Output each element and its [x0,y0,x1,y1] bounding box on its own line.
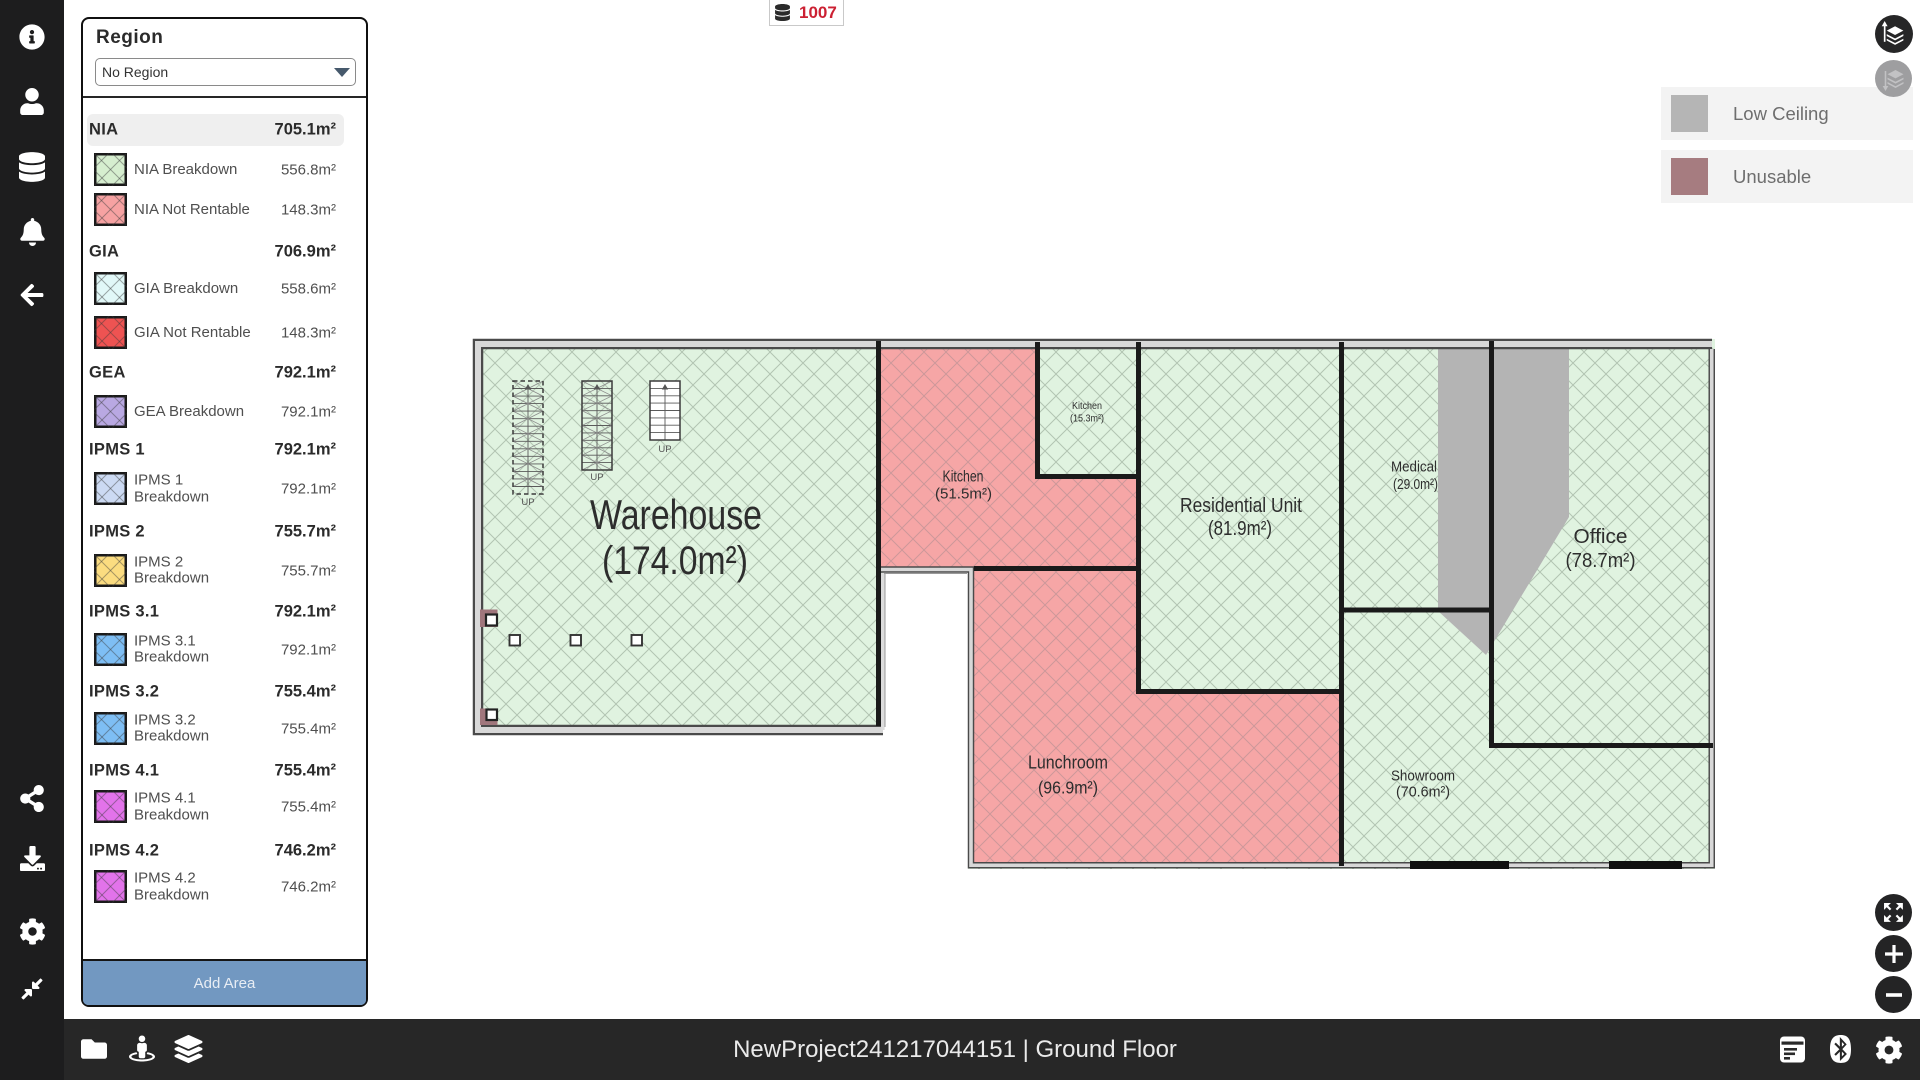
svg-text:(15.3m²): (15.3m²) [1070,413,1104,425]
svg-text:(174.0m²): (174.0m²) [602,539,748,583]
svg-text:(81.9m²): (81.9m²) [1208,518,1272,540]
svg-text:Kitchen: Kitchen [943,469,984,486]
svg-text:(29.0m²): (29.0m²) [1393,476,1438,493]
svg-text:Kitchen: Kitchen [1072,400,1102,412]
svg-text:Warehouse: Warehouse [590,491,762,538]
svg-text:Residential Unit: Residential Unit [1180,494,1302,517]
svg-text:UP: UP [590,472,603,483]
svg-text:Medical: Medical [1391,459,1437,476]
svg-text:Lunchroom: Lunchroom [1028,753,1108,773]
svg-text:(78.7m²): (78.7m²) [1566,550,1636,572]
svg-text:Showroom: Showroom [1391,768,1455,785]
svg-text:Office: Office [1574,525,1628,548]
svg-text:UP: UP [658,444,671,455]
svg-text:(96.9m²): (96.9m²) [1038,778,1098,798]
svg-text:UP: UP [521,497,534,508]
svg-text:(70.6m²): (70.6m²) [1396,784,1450,801]
svg-text:(51.5m²): (51.5m²) [935,486,992,503]
